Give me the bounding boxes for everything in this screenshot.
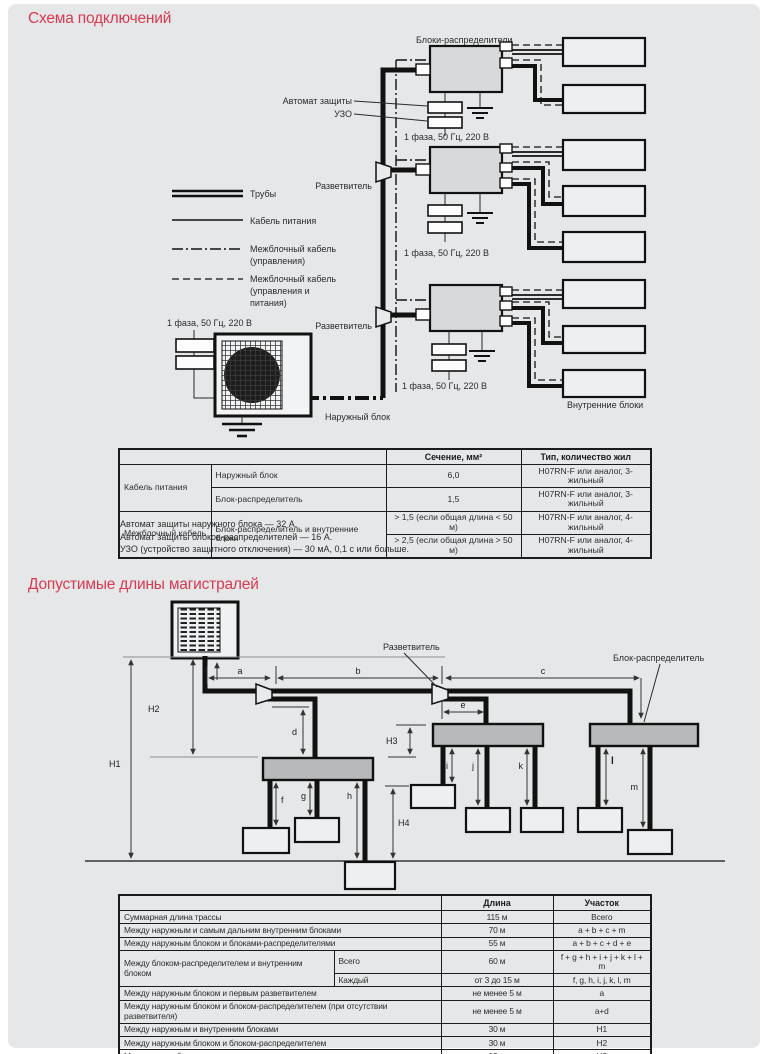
legend-cp-3: питания) xyxy=(250,298,287,308)
dim-g: g xyxy=(301,791,306,801)
distributor-box-3 xyxy=(430,285,502,331)
legend-cp-2: (управления и xyxy=(250,286,310,296)
table-row: Между наружным блоком и блоком-распредел… xyxy=(119,1037,651,1050)
note-line: Автомат защиты наружного блока — 32 А. xyxy=(120,518,409,531)
table-row: Между наружным блоком и первым разветвит… xyxy=(119,987,651,1000)
cell-type: H07RN-F или аналог, 4-жильный xyxy=(521,511,651,534)
dim-m: m xyxy=(631,782,639,792)
cell-segment: Всего xyxy=(553,911,651,924)
cell-item: Блок-распределитель xyxy=(211,488,386,511)
cell-length: 60 м xyxy=(441,951,553,974)
table-row: Между блоком-распределителем и внутренни… xyxy=(119,951,651,974)
indoor-box-j xyxy=(466,808,510,832)
legend-pipes: Трубы xyxy=(250,189,276,199)
splitter2-label: Разветвитель xyxy=(315,321,372,331)
col-section: Сечение, мм² xyxy=(386,449,521,465)
catalog-page: Схема подключений Допустимые длины магис… xyxy=(0,0,768,1054)
distributor-right xyxy=(590,724,698,746)
phase-label-1: 1 фаза, 50 Гц, 220 В xyxy=(404,132,489,142)
splitter-callout: Разветвитель xyxy=(383,642,440,652)
cell-segment: a + b + c + m xyxy=(553,924,651,937)
cell-section: 6,0 xyxy=(386,465,521,488)
cell-length: не менее 5 м xyxy=(441,987,553,1000)
col-type: Тип, количество жил xyxy=(521,449,651,465)
splitter-icon-1 xyxy=(376,162,391,182)
indoor-unit-2 xyxy=(563,85,645,113)
dim-i: i xyxy=(446,761,448,771)
distributor-left xyxy=(263,758,373,780)
splitter1-label: Разветвитель xyxy=(315,181,372,191)
dim-c: c xyxy=(541,666,546,676)
indoor-unit-6 xyxy=(563,280,645,308)
dim-d: d xyxy=(292,727,297,737)
dim-j: j xyxy=(471,761,474,771)
breaker-box xyxy=(428,205,462,216)
indoor-box-i xyxy=(411,785,455,808)
cell-segment: a xyxy=(553,987,651,1000)
phase-label-3: 1 фаза, 50 Гц, 220 В xyxy=(402,381,487,391)
distributor-box-1 xyxy=(430,46,502,92)
cell-group: Кабель питания xyxy=(119,465,211,512)
cell-length: 15 м xyxy=(441,1050,553,1054)
table-row: Между наружным блоком и блоками-распреде… xyxy=(119,937,651,950)
table-row: Длина Участок xyxy=(119,895,651,911)
cell-sub: Всего xyxy=(334,951,441,974)
dim-H3: H3 xyxy=(386,736,398,746)
distributor-group-2: 1 фаза, 50 Гц, 220 В xyxy=(404,144,563,258)
indoor-box-g xyxy=(295,818,339,842)
indoor-units-label: Внутренние блоки xyxy=(567,400,643,410)
rcd-box xyxy=(428,222,462,233)
cell-segment: a+d xyxy=(553,1000,651,1023)
outdoor-unit-label: Наружный блок xyxy=(325,412,390,422)
cell-item: Наружный блок xyxy=(211,465,386,488)
rcd-box xyxy=(428,117,462,128)
indoor-box-m xyxy=(628,830,672,854)
phase-label-outdoor: 1 фаза, 50 Гц, 220 В xyxy=(167,318,252,328)
splitter-icon-2 xyxy=(376,307,391,327)
outdoor-unit: 1 фаза, 50 Гц, 220 В Наружный блок xyxy=(167,318,390,436)
indoor-unit-7 xyxy=(563,326,645,353)
connection-diagram: Разветвитель Разветвитель Блоки-распреде… xyxy=(167,35,645,436)
indoor-unit-3 xyxy=(563,140,645,170)
indoor-unit-1 xyxy=(563,38,645,66)
legend-control-2: (управления) xyxy=(250,256,305,266)
breaker-box xyxy=(432,344,466,355)
cell-name: Между наружным и внутренним блоками xyxy=(119,1023,441,1036)
cell-name: Между наружным блоком и блоком-распредел… xyxy=(119,1037,441,1050)
breaker-box xyxy=(428,102,462,113)
col-segment: Участок xyxy=(553,895,651,911)
phase-label-2: 1 фаза, 50 Гц, 220 В xyxy=(404,248,489,258)
dim-e: e xyxy=(460,700,465,710)
cell-length: 115 м xyxy=(441,911,553,924)
table-row: Суммарная длина трассы 115 м Всего xyxy=(119,911,651,924)
ground-symbol xyxy=(467,213,493,223)
indoor-box-l xyxy=(578,808,622,832)
rcd-label: УЗО xyxy=(334,109,352,119)
indoor-units: Внутренние блоки xyxy=(563,38,645,410)
dim-f: f xyxy=(281,795,284,805)
indoor-box-h xyxy=(345,862,395,889)
cell-name: Между наружным блоком и блоком-распредел… xyxy=(119,1000,441,1023)
cell-name: Между наружным и самым дальним внутренни… xyxy=(119,924,441,937)
legend-control-1: Межблочный кабель xyxy=(250,244,336,254)
lengths-table: Длина Участок Суммарная длина трассы 115… xyxy=(118,894,652,1054)
cell-name: Между блоком-распределителем и внутренни… xyxy=(119,951,334,987)
indoor-box-k xyxy=(521,808,563,832)
ground-symbol xyxy=(469,351,495,361)
cell-segment: a + b + c + d + e xyxy=(553,937,651,950)
table-row: Между двумя блоками-распределителями 15 … xyxy=(119,1050,651,1054)
dim-H2: H2 xyxy=(148,704,160,714)
cell-segment: H3 xyxy=(553,1050,651,1054)
lengths-diagram: Разветвитель Блок-распределитель xyxy=(85,602,725,889)
cell-segment: H1 xyxy=(553,1023,651,1036)
dim-h: h xyxy=(347,791,352,801)
empty-header xyxy=(119,895,441,911)
table-row: Между наружным и внутренним блоками 30 м… xyxy=(119,1023,651,1036)
cell-segment: H2 xyxy=(553,1037,651,1050)
distributor-group-1: Блоки-распределители 1 фаза, 50 Гц, 220 … xyxy=(283,35,563,142)
empty-header xyxy=(119,449,386,465)
breaker-label: Автомат защиты xyxy=(283,96,352,106)
trunk-lines xyxy=(305,60,430,398)
distributor-callout: Блок-распределитель xyxy=(613,653,705,663)
cell-length: от 3 до 15 м xyxy=(441,974,553,987)
fan-grille xyxy=(222,341,282,409)
dim-k: k xyxy=(519,761,524,771)
table-row: Между наружным блоком и блоком-распредел… xyxy=(119,1000,651,1023)
cell-segment: f + g + h + i + j + k + l + m xyxy=(553,951,651,974)
cell-section: 1,5 xyxy=(386,488,521,511)
cell-type: H07RN-F или аналог, 4-жильный xyxy=(521,534,651,558)
dim-a: a xyxy=(237,666,242,676)
wiring-legend: Трубы Кабель питания Межблочный кабель (… xyxy=(172,189,336,308)
cell-type: H07RN-F или аналог, 3-жильный xyxy=(521,465,651,488)
cell-segment: f, g, h, i, j, k, l, m xyxy=(553,974,651,987)
refrigerant-trunk xyxy=(205,656,630,760)
col-length: Длина xyxy=(441,895,553,911)
indoor-unit-5 xyxy=(563,232,645,262)
note-line: Автомат защиты блоков-распределителей — … xyxy=(120,531,409,544)
rcd-box xyxy=(432,360,466,371)
table-row: Сечение, мм² Тип, количество жил xyxy=(119,449,651,465)
cell-length: не менее 5 м xyxy=(441,1000,553,1023)
distributor-middle xyxy=(433,724,543,746)
ground-symbol xyxy=(222,424,262,436)
cell-length: 30 м xyxy=(441,1023,553,1036)
indoor-unit-4 xyxy=(563,186,645,216)
indoor-box-f xyxy=(243,828,289,853)
cell-length: 55 м xyxy=(441,937,553,950)
breaker-box xyxy=(176,339,214,352)
cell-type: H07RN-F или аналог, 3-жильный xyxy=(521,488,651,511)
dim-H4: H4 xyxy=(398,818,410,828)
lengths-table-wrap: Длина Участок Суммарная длина трассы 115… xyxy=(118,894,650,1054)
cell-name: Между двумя блоками-распределителями xyxy=(119,1050,441,1054)
dim-l: l xyxy=(611,756,614,767)
distributors-label: Блоки-распределители xyxy=(416,35,513,45)
dim-H1: H1 xyxy=(109,759,121,769)
table-row: Между наружным и самым дальним внутренни… xyxy=(119,924,651,937)
distributor-group-3: 1 фаза, 50 Гц, 220 В xyxy=(402,285,563,391)
cell-name: Между наружным блоком и первым разветвит… xyxy=(119,987,441,1000)
indoor-units-2 xyxy=(243,785,672,889)
cell-sub: Каждый xyxy=(334,974,441,987)
cell-name: Между наружным блоком и блоками-распреде… xyxy=(119,937,441,950)
cell-length: 30 м xyxy=(441,1037,553,1050)
cell-length: 70 м xyxy=(441,924,553,937)
cell-name: Суммарная длина трассы xyxy=(119,911,441,924)
ground-symbol xyxy=(467,108,493,118)
note-line: УЗО (устройство защитного отключения) — … xyxy=(120,543,409,556)
legend-cp-1: Межблочный кабель xyxy=(250,274,336,284)
indoor-unit-8 xyxy=(563,370,645,397)
legend-power: Кабель питания xyxy=(250,216,316,226)
notes-block: Автомат защиты наружного блока — 32 А. А… xyxy=(120,518,409,556)
outdoor-unit-2 xyxy=(172,602,238,658)
distributor-box-2 xyxy=(430,147,502,193)
table-row: Кабель питания Наружный блок 6,0 H07RN-F… xyxy=(119,465,651,488)
dim-b: b xyxy=(355,666,360,676)
rcd-box xyxy=(176,356,214,369)
